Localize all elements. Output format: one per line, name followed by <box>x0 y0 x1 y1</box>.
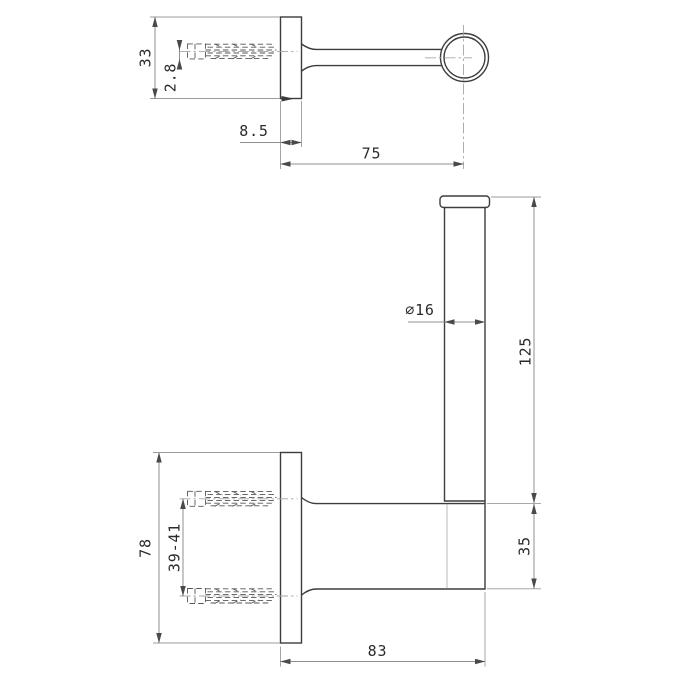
front-arm-lower-edge <box>302 589 486 595</box>
dim-text-tube-length: 125 <box>517 337 535 367</box>
hidden-screw-top-view <box>180 44 298 59</box>
hidden-screw-lower <box>180 589 298 604</box>
top-view <box>180 17 489 169</box>
hidden-screw-upper <box>180 491 298 506</box>
dim-text-tube-diameter: ⌀16 <box>405 301 435 319</box>
top-view-dimensions: 33 2.8 8.5 75 <box>137 17 464 169</box>
tube-end-cap <box>440 196 490 208</box>
dim-text-overall-projection: 83 <box>368 642 388 660</box>
front-view-dimensions: ⌀16 125 35 78 39-41 83 <box>137 197 542 667</box>
top-wall-plate <box>281 17 302 99</box>
dim-text-screw-offset: 2.8 <box>162 63 180 93</box>
technical-drawing-canvas: 33 2.8 8.5 75 ⌀16 12 <box>0 0 700 700</box>
top-arm-upper-edge <box>302 44 442 49</box>
dim-text-backplate-height: 78 <box>137 538 155 558</box>
front-wall-plate <box>281 453 302 644</box>
dim-text-plate-height: 33 <box>137 48 155 68</box>
top-arm-lower-edge <box>302 66 442 71</box>
front-view <box>180 196 490 643</box>
dim-text-hole-spacing: 39-41 <box>166 523 184 572</box>
dim-text-arm-section-height: 35 <box>516 536 534 556</box>
plate-edge-detail-mark <box>282 96 295 102</box>
dim-text-plate-thickness: 8.5 <box>239 122 269 140</box>
cad-drawing-svg: 33 2.8 8.5 75 ⌀16 12 <box>0 0 700 700</box>
dim-text-arm-reach: 75 <box>362 145 382 163</box>
